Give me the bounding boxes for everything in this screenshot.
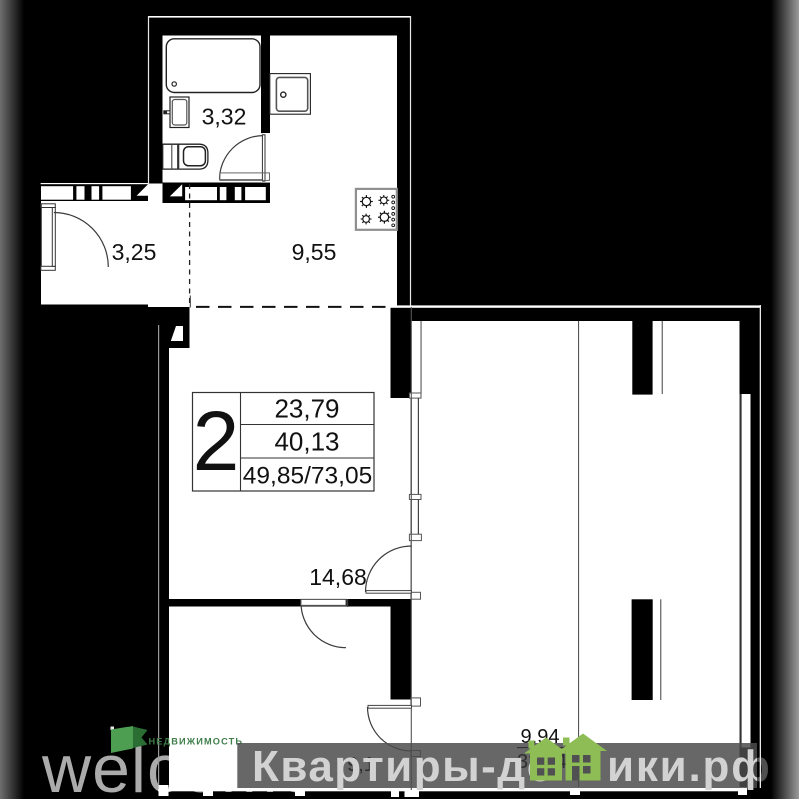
svg-text:3,32: 3,32 bbox=[202, 104, 247, 130]
svg-text:14,68: 14,68 bbox=[309, 564, 367, 590]
svg-text:2: 2 bbox=[193, 394, 240, 488]
svg-text:40,13: 40,13 bbox=[274, 427, 339, 457]
svg-text:Квартиры-до: Квартиры-до bbox=[252, 742, 555, 791]
svg-text:49,85/73,05: 49,85/73,05 bbox=[243, 463, 372, 490]
svg-text:НЕДВИЖИМОСТЬ: НЕДВИЖИМОСТЬ bbox=[149, 737, 244, 747]
svg-text:3,25: 3,25 bbox=[112, 239, 157, 265]
svg-text:9,55: 9,55 bbox=[292, 239, 337, 265]
svg-text:23,79: 23,79 bbox=[274, 394, 339, 424]
svg-text:ики.рф: ики.рф bbox=[607, 742, 772, 791]
